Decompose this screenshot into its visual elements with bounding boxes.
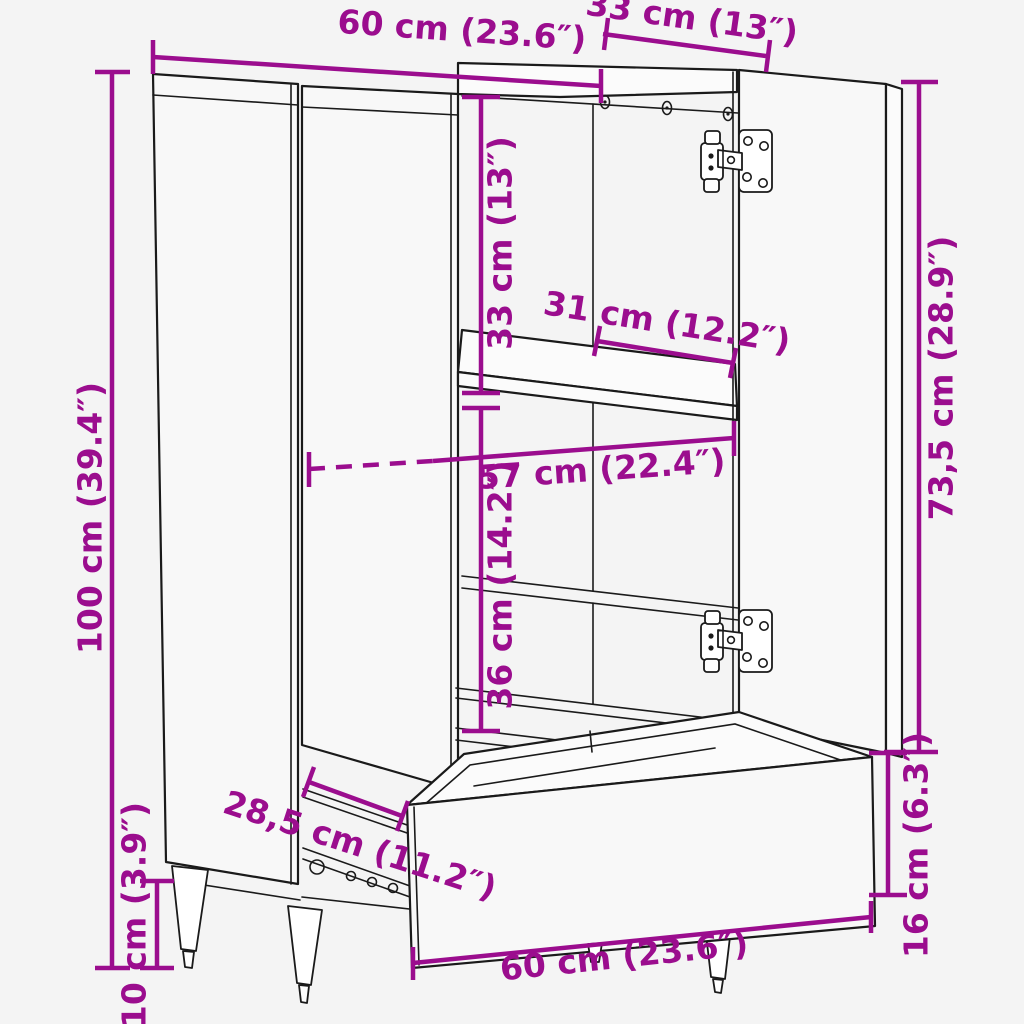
drawer-open	[407, 712, 875, 968]
right-door-edge	[886, 84, 902, 757]
leg-middle	[288, 906, 322, 1003]
screw-icon	[724, 108, 733, 121]
back-panel-screws	[601, 96, 733, 121]
hinge-icon	[701, 130, 772, 192]
cabinet-dimension-drawing: 60 cm (23.6″) 33 cm (13″) 100 cm (39.4″)…	[0, 0, 1024, 1024]
left-door-open	[302, 86, 458, 790]
dim-label-upper-compartment-height: 33 cm (13″)	[481, 136, 520, 350]
leg-front-left	[172, 866, 208, 968]
dim-label-top-width: 60 cm (23.6″)	[336, 2, 587, 58]
dim-label-door-height: 73,5 cm (28.9″)	[922, 236, 961, 521]
dim-label-leg-height: 10 cm (3.9″)	[115, 802, 154, 1024]
dimension-drawer-height: 16 cm (6.3″)	[869, 732, 936, 958]
dimension-top-depth: 33 cm (13″)	[583, 0, 800, 72]
dim-label-lower-compartment-height: 36 cm (14.2″)	[481, 460, 520, 709]
dim-label-drawer-height: 16 cm (6.3″)	[897, 732, 936, 958]
dim-label-total-height: 100 cm (39.4″)	[71, 382, 110, 654]
diagram-canvas: 60 cm (23.6″) 33 cm (13″) 100 cm (39.4″)…	[0, 0, 1024, 1024]
left-side-panel	[153, 74, 298, 884]
